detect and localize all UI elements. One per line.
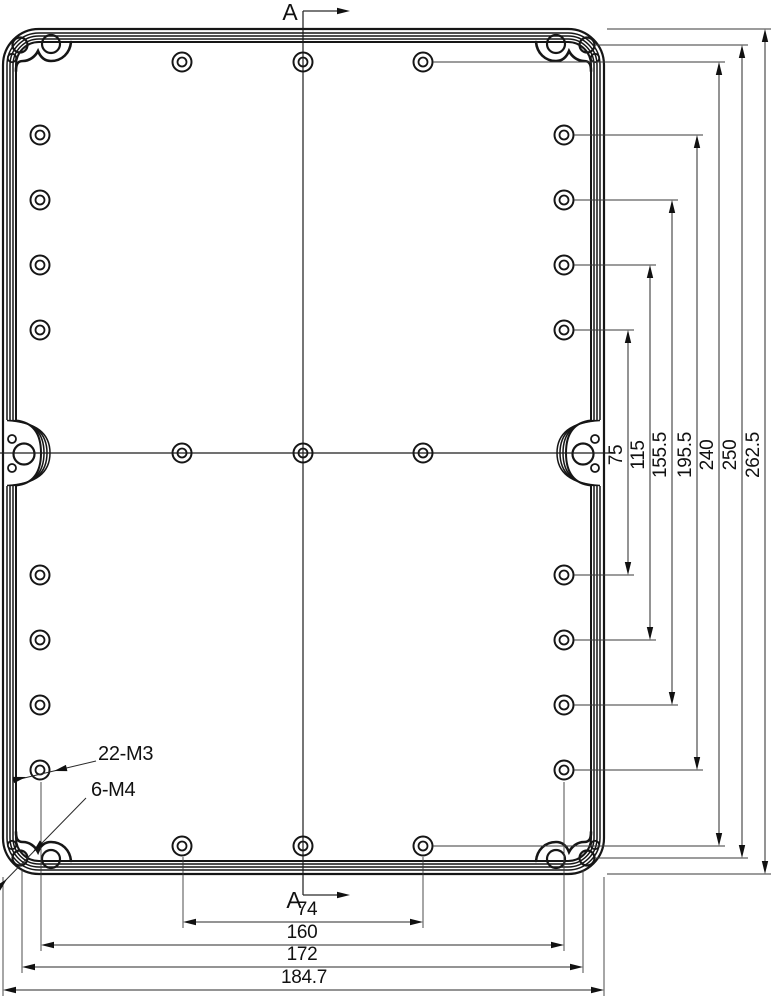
dim-value: 155.5	[650, 432, 671, 478]
section-label-top: A	[282, 0, 298, 25]
section-marker-top: A	[282, 0, 350, 25]
dim-value: 115	[628, 440, 649, 469]
dim-value: 262.5	[743, 432, 764, 478]
drawing-canvas: A A 75 115 155.5 195.5 240	[0, 0, 774, 1000]
corner-boss-top-right	[536, 35, 599, 71]
technical-drawing: A A 75 115 155.5 195.5 240	[0, 0, 774, 1000]
dim-value: 240	[697, 440, 718, 471]
corner-boss-bottom-right	[536, 832, 599, 868]
dim-value: 75	[606, 445, 627, 466]
dim-value: 250	[720, 440, 741, 471]
dim-value: 160	[287, 922, 318, 943]
m3-holes	[31, 53, 574, 856]
m4-label: 6-M4	[91, 779, 136, 801]
screw-hole	[42, 35, 60, 53]
dim-value: 195.5	[675, 432, 696, 478]
corner-boss-bottom-left	[8, 832, 71, 868]
m3-label: 22-M3	[98, 743, 153, 765]
screw-hole	[547, 35, 565, 53]
screw-hole	[42, 850, 60, 868]
section-arrow-icon	[337, 8, 350, 14]
dim-value: 172	[287, 944, 318, 965]
section-arrow-icon	[337, 892, 350, 898]
screw-hole	[547, 850, 565, 868]
corner-boss-top-left	[8, 35, 71, 71]
dim-value: 74	[297, 899, 318, 920]
dim-value: 184.7	[281, 967, 327, 988]
